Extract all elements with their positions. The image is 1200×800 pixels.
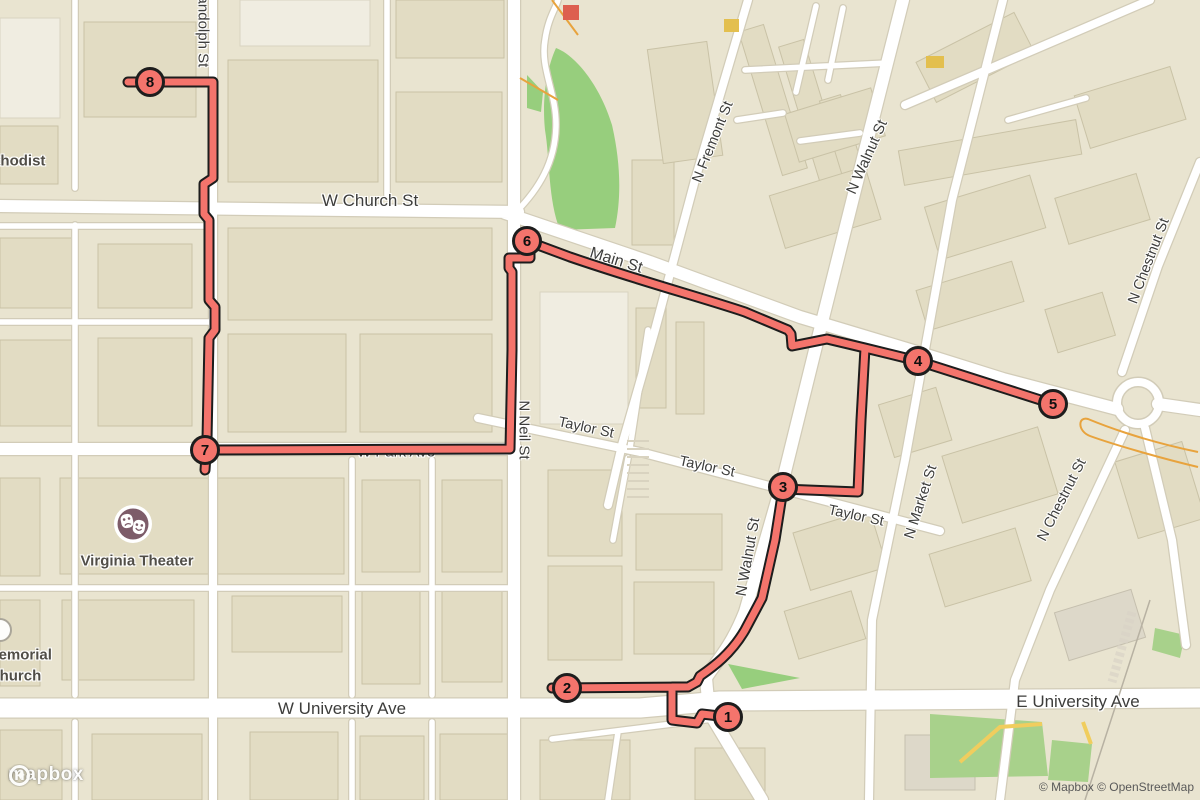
route-marker-4[interactable]: 4 — [903, 346, 933, 376]
route-marker-7[interactable]: 7 — [190, 435, 220, 465]
route-layer — [0, 0, 1200, 800]
mapbox-logo[interactable]: mapbox — [8, 764, 84, 786]
route-line — [128, 82, 1053, 723]
map-canvas[interactable]: Randolph St W Church St Main St N Fremon… — [0, 0, 1200, 800]
mapbox-logo-icon — [8, 764, 31, 787]
route-marker-6[interactable]: 6 — [512, 226, 542, 256]
route-marker-2[interactable]: 2 — [552, 673, 582, 703]
route-marker-1[interactable]: 1 — [713, 702, 743, 732]
route-marker-8[interactable]: 8 — [135, 67, 165, 97]
route-marker-5[interactable]: 5 — [1038, 389, 1068, 419]
route-marker-3[interactable]: 3 — [768, 472, 798, 502]
map-attribution[interactable]: © Mapbox © OpenStreetMap — [1039, 780, 1194, 794]
